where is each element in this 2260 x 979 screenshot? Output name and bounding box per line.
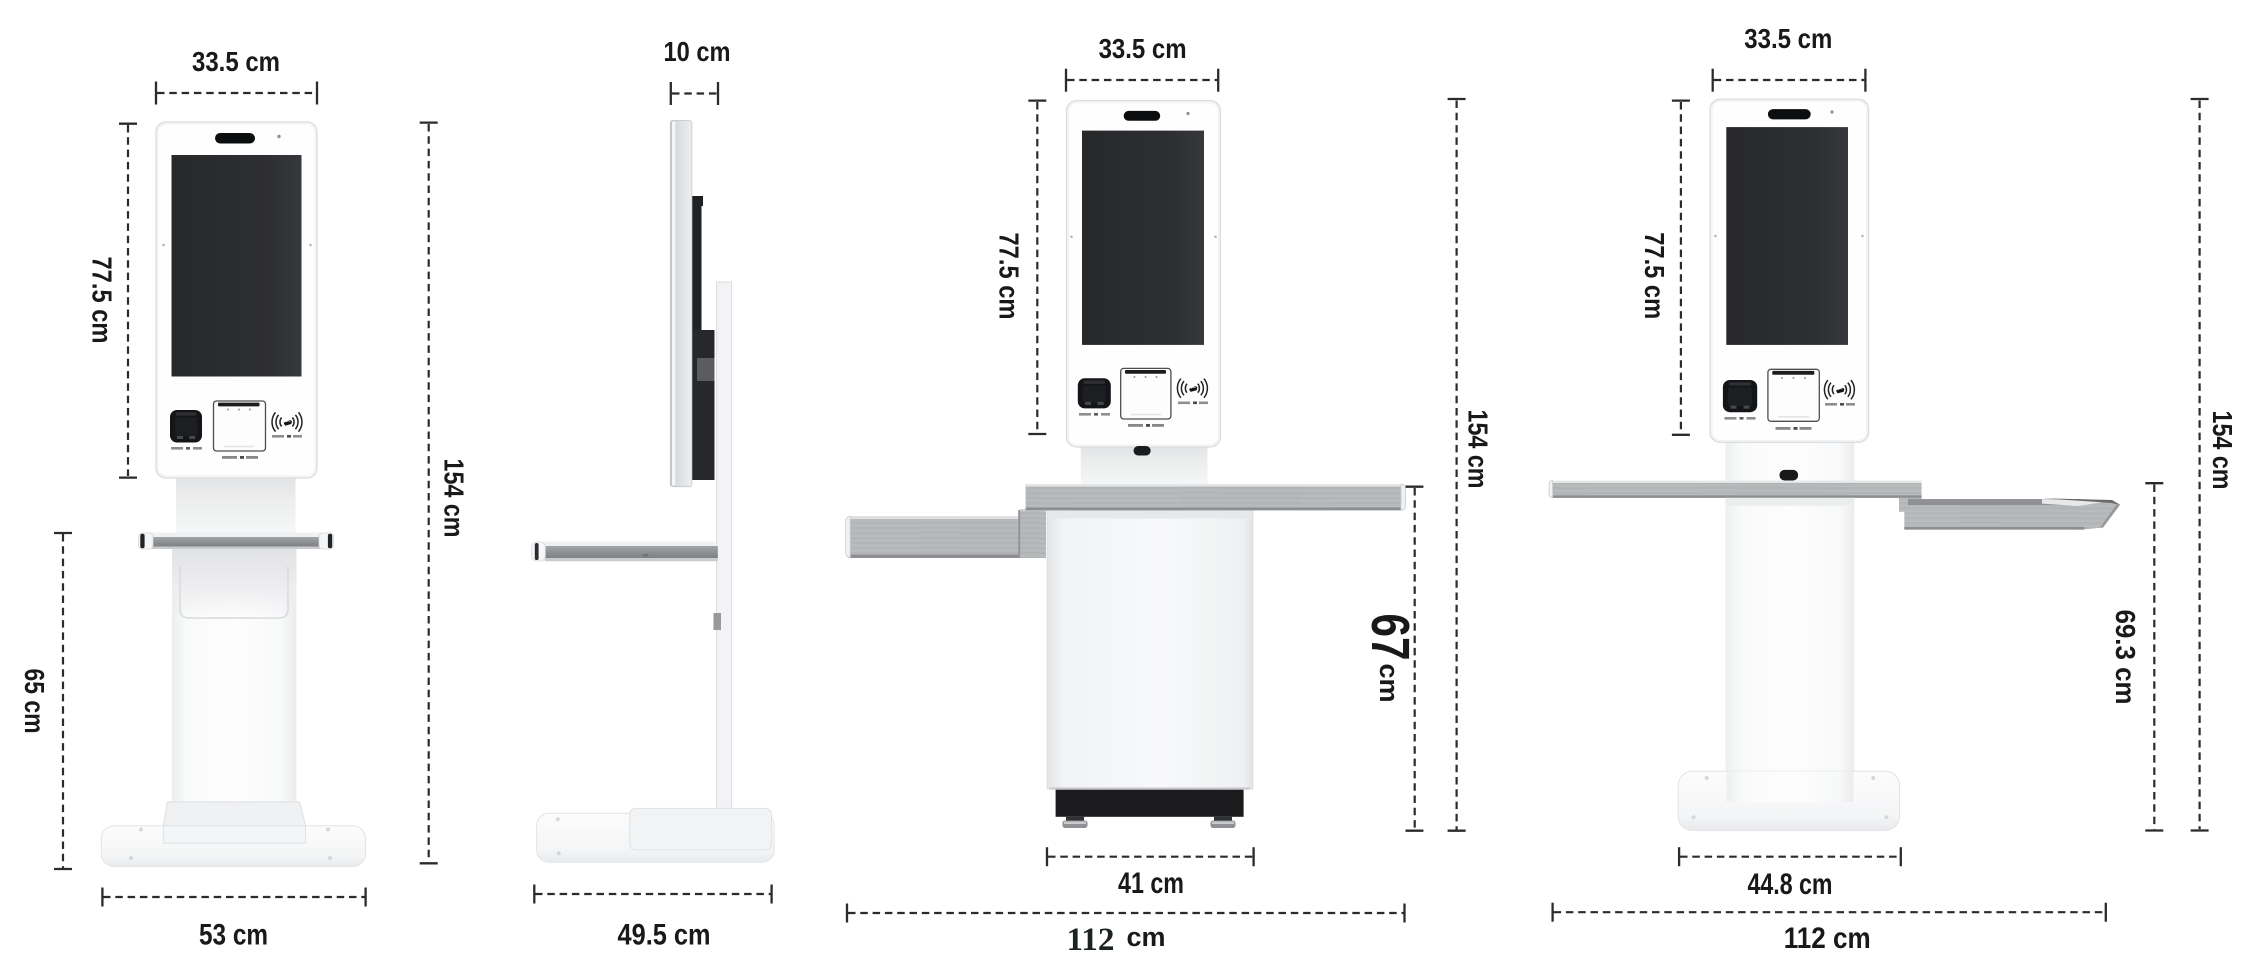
svg-text:44.8 cm: 44.8 cm	[1748, 868, 1833, 901]
svg-text:154 cm: 154 cm	[438, 459, 469, 538]
svg-text:67: 67	[1360, 614, 1420, 661]
svg-text:33.5 cm: 33.5 cm	[1099, 33, 1187, 64]
svg-text:154 cm: 154 cm	[1462, 410, 1493, 489]
svg-text:112 cm: 112 cm	[1784, 922, 1871, 955]
svg-text:69.3 cm: 69.3 cm	[2110, 610, 2141, 705]
svg-text:77.5 cm: 77.5 cm	[1639, 232, 1670, 319]
svg-text:154 cm: 154 cm	[2207, 411, 2238, 490]
svg-text:49.5 cm: 49.5 cm	[618, 918, 711, 951]
svg-text:53 cm: 53 cm	[199, 918, 268, 951]
svg-text:cm: cm	[1126, 922, 1165, 952]
svg-text:41 cm: 41 cm	[1118, 867, 1184, 900]
svg-text:65 cm: 65 cm	[19, 669, 50, 734]
svg-text:77.5 cm: 77.5 cm	[993, 233, 1024, 320]
svg-text:33.5 cm: 33.5 cm	[192, 46, 280, 77]
svg-text:112: 112	[1067, 922, 1115, 958]
svg-text:10 cm: 10 cm	[664, 36, 731, 67]
svg-text:77.5 cm: 77.5 cm	[86, 257, 117, 344]
svg-text:cm: cm	[1374, 663, 1404, 702]
svg-text:33.5 cm: 33.5 cm	[1744, 23, 1832, 54]
